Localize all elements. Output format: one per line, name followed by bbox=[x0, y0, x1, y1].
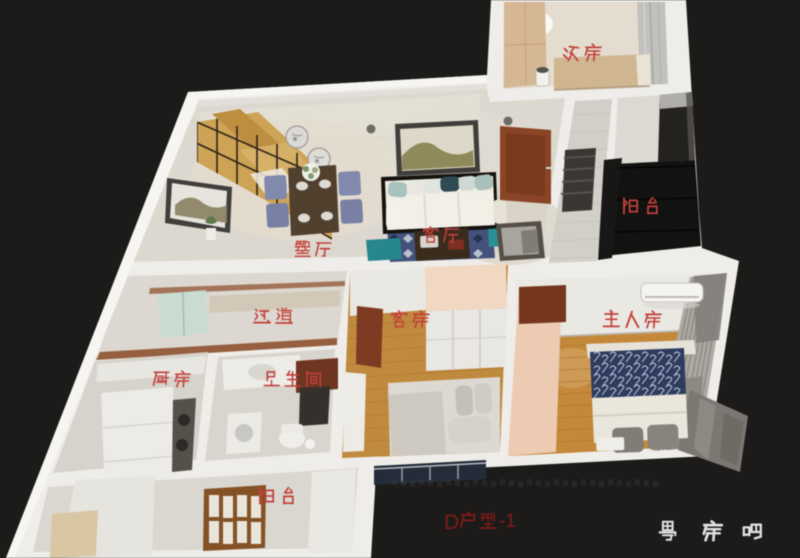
svg-text:-1: -1 bbox=[499, 511, 516, 532]
svg-text:D: D bbox=[444, 511, 459, 534]
